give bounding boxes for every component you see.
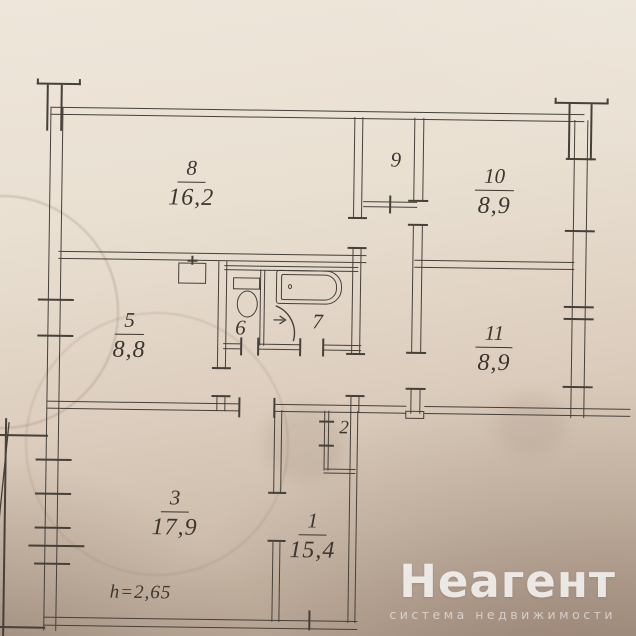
watermark: Неагент система недвижимости	[389, 559, 616, 622]
room-label-2: 2	[337, 418, 351, 437]
room-number: 10	[475, 166, 514, 192]
watermark-tagline: система недвижимости	[389, 607, 616, 622]
room-label-3: 3 17,9	[151, 487, 198, 540]
room-area: 16,2	[168, 182, 214, 210]
door-arc	[275, 306, 295, 341]
room-label-9: 9	[381, 149, 410, 173]
room-number: 2	[337, 418, 351, 437]
floorplan-photo: 8 16,2 9 10 8,9 5 8,8 6 7 11 8,9 2 3 17,…	[0, 0, 636, 636]
room-area: 17,9	[151, 512, 197, 540]
ceiling-height-note: h=2,65	[110, 582, 172, 605]
room-number: 7	[303, 311, 332, 335]
room-label-6: 6	[226, 317, 255, 341]
room-area: 8,9	[475, 191, 514, 219]
room-label-8: 8 16,2	[168, 157, 215, 210]
room-number: 1	[298, 510, 327, 535]
room-area: 8,9	[475, 348, 513, 376]
room-label-11: 11 8,9	[475, 323, 513, 376]
room-number: 5	[115, 310, 144, 335]
balcony-diagonal	[0, 422, 9, 558]
watermark-brand: Неагент	[389, 559, 616, 604]
room-label-5: 5 8,8	[112, 310, 146, 362]
room-number: 11	[475, 323, 513, 349]
room-area: 15,4	[289, 535, 335, 563]
room-label-1: 1 15,4	[289, 510, 336, 563]
room-number: 8	[177, 157, 206, 182]
room-number: 9	[381, 149, 410, 173]
room-label-7: 7	[303, 311, 332, 335]
room-label-10: 10 8,9	[475, 166, 515, 219]
room-number: 3	[161, 487, 190, 512]
room-area: 8,8	[112, 335, 145, 362]
door-arrow-icon	[274, 316, 286, 324]
room-number: 6	[226, 317, 255, 341]
floorplan: 8 16,2 9 10 8,9 5 8,8 6 7 11 8,9 2 3 17,…	[0, 0, 636, 636]
